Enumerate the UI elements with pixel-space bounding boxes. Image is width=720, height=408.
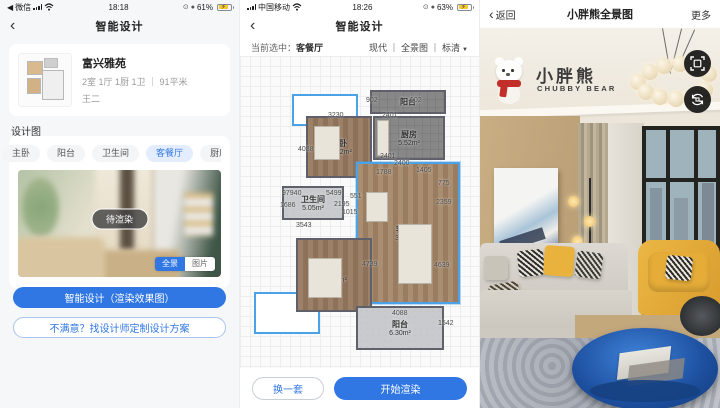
room-tabs: 主卧 阳台 卫生间 客餐厅 厨房	[2, 145, 221, 162]
nav-bar-right: ‹ 返回 小胖熊全景图 更多	[480, 0, 720, 28]
status-time: 18:26	[352, 3, 372, 12]
signal-icon	[247, 4, 256, 10]
tab-kitchen[interactable]: 厨房	[200, 145, 221, 162]
toggle-picture[interactable]: 图片	[185, 257, 215, 271]
status-bar-middle: 中国移动 18:26 ⊙ ● 63% ⚡	[240, 0, 479, 14]
design-preview-image[interactable]: 待渲染 全景 图片	[18, 170, 221, 277]
dimension-label: 551	[350, 193, 362, 200]
dimension-label: 902	[410, 97, 422, 104]
panorama-view[interactable]: 小胖熊 CHUBBY BEAR	[480, 28, 720, 408]
nav-bar-left: ‹ 智能设计	[0, 14, 239, 38]
page-title: 智能设计	[96, 18, 144, 34]
tab-bathroom[interactable]: 卫生间	[92, 145, 139, 162]
dimension-label: 2359	[436, 199, 452, 206]
lock-icon: ●	[431, 4, 435, 11]
rotate-icon	[690, 92, 705, 107]
dimension-label: 1015	[342, 209, 358, 216]
dimension-label: 1788	[376, 169, 392, 176]
brand-logo: 小胖熊 CHUBBY BEAR	[492, 58, 642, 114]
dimension-label: 5499	[326, 190, 342, 197]
tab-balcony[interactable]: 阳台	[47, 145, 85, 162]
dimension-label: 1405	[416, 167, 432, 174]
bear-mascot-icon	[492, 60, 528, 104]
toggle-panorama[interactable]: 全景	[155, 257, 185, 271]
panel-panorama-viewer: ‹ 返回 小胖熊全景图 更多	[480, 0, 720, 408]
lock-icon: ●	[191, 4, 195, 11]
dimension-label: 1542	[438, 320, 454, 327]
wechat-label: 微信	[15, 2, 31, 13]
tab-master-bedroom[interactable]: 主卧	[2, 145, 40, 162]
dimension-label: 97940	[282, 190, 301, 197]
render-status-badge: 待渲染	[91, 209, 148, 230]
dimension-label: 4088	[298, 146, 314, 153]
gyroscope-rotate-button[interactable]	[684, 86, 711, 113]
property-card[interactable]: 富兴雅苑 2室 1厅 1厨 1卫 ｜ 91平米 王二	[9, 44, 230, 116]
find-designer-button[interactable]: 不满意？找设计师定制设计方案	[13, 317, 226, 338]
nav-bar-middle: ‹ 智能设计	[240, 14, 479, 38]
status-bar-left: ◀ 微信 18:18 ⊙ ● 61% ⚡	[0, 0, 239, 14]
chevron-left-icon: ‹	[489, 9, 494, 19]
smart-design-button[interactable]: 智能设计（渲染效果图）	[13, 287, 226, 308]
carrier-label: 中国移动	[258, 2, 290, 13]
dimension-label: 4739	[362, 261, 378, 268]
page-title: 智能设计	[336, 18, 384, 34]
floorplan-thumbnail	[18, 53, 72, 107]
wifi-icon	[292, 3, 302, 11]
back-to-app-icon: ◀	[7, 3, 13, 12]
fullscreen-button[interactable]	[684, 50, 711, 77]
battery-icon: ⚡	[457, 4, 472, 11]
dimension-label: 2401	[380, 153, 396, 160]
back-button[interactable]: ‹	[250, 15, 255, 37]
more-button[interactable]: 更多	[691, 7, 711, 22]
dimension-label: 3543	[296, 222, 312, 229]
change-set-button[interactable]: 换一套	[252, 377, 324, 400]
alarm-icon: ⊙	[423, 3, 429, 11]
back-button[interactable]: ‹ 返回	[489, 7, 516, 22]
chevron-down-icon: ▼	[462, 47, 468, 53]
dimension-label: 4088	[392, 310, 408, 317]
tab-living-dining[interactable]: 客餐厅	[146, 145, 193, 162]
dimension-label: 775	[438, 180, 450, 187]
dimension-layer: 3230902902240124012400178814057759794054…	[240, 56, 479, 368]
dimension-label: 2401	[382, 112, 398, 119]
status-time: 18:18	[109, 3, 129, 12]
brand-name-en: CHUBBY BEAR	[537, 84, 616, 93]
battery-percent: 63%	[437, 3, 453, 12]
dimension-label: 1686	[280, 202, 296, 209]
battery-icon: ⚡	[217, 4, 232, 11]
alarm-icon: ⊙	[183, 3, 189, 11]
dimension-label: 2195	[334, 201, 350, 208]
property-owner: 王二	[82, 92, 188, 105]
current-selection: 当前选中：客餐厅	[251, 41, 323, 54]
start-render-button[interactable]: 开始渲染	[334, 377, 467, 400]
floorplan-canvas[interactable]: 阳台 厨房5.52m² 次卧13.22m² 卫生间5.05m² 客餐厅32.04…	[240, 56, 479, 368]
side-table	[680, 296, 720, 336]
view-toggle: 全景 图片	[155, 257, 215, 271]
design-card: 主卧 阳台 卫生间 客餐厅 厨房 待渲染 全景 图片	[9, 136, 230, 288]
selected-room-name: 客餐厅	[296, 43, 323, 53]
dimension-label: 4639	[434, 262, 450, 269]
back-button[interactable]: ‹	[10, 15, 15, 37]
dimension-label: 2400	[394, 160, 410, 167]
property-specs: 2室 1厅 1厨 1卫 ｜ 91平米	[82, 75, 188, 88]
selection-bar: 当前选中：客餐厅 现代 ｜ 全景图 ｜ 标清▼	[240, 38, 479, 56]
style-options-dropdown[interactable]: 现代 ｜ 全景图 ｜ 标清▼	[369, 41, 468, 54]
page-title: 小胖熊全景图	[567, 6, 633, 22]
panel-floorplan-editor: 中国移动 18:26 ⊙ ● 63% ⚡ ‹ 智能设计 当前选中：客餐厅 现代 …	[240, 0, 480, 408]
signal-icon	[33, 4, 42, 10]
panel-design-list: ◀ 微信 18:18 ⊙ ● 61% ⚡ ‹ 智能设计 富兴雅苑 2室 1厅 1…	[0, 0, 240, 408]
editor-actions: 换一套 开始渲染	[240, 368, 479, 408]
fullscreen-icon	[690, 56, 705, 71]
battery-percent: 61%	[197, 3, 213, 12]
wifi-icon	[44, 3, 54, 11]
app-root: ◀ 微信 18:18 ⊙ ● 61% ⚡ ‹ 智能设计 富兴雅苑 2室 1厅 1…	[0, 0, 720, 408]
dimension-label: 902	[366, 97, 378, 104]
dimension-label: 3230	[328, 112, 344, 119]
property-name: 富兴雅苑	[82, 55, 188, 71]
